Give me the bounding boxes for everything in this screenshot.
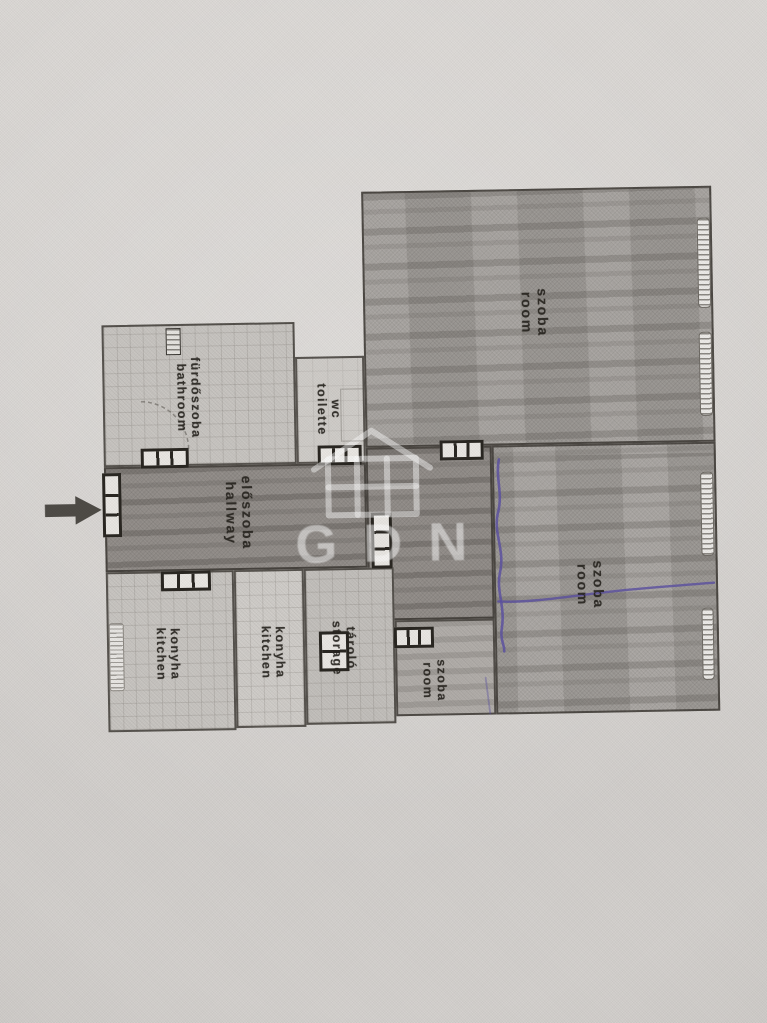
floorplan-drawing: GDN szoba room szoba room szoba room für… <box>99 185 720 733</box>
kitchen-mid-label: konyha kitchen <box>259 625 288 679</box>
room-large-label: szoba room <box>518 288 550 337</box>
wc-label: wc toilette <box>314 383 343 436</box>
entrance-arrow-icon <box>44 494 102 526</box>
scanned-floorplan-photo: { "floorplan": { "watermark_text": "GDN"… <box>0 0 767 1023</box>
storage-label: tároló storage <box>330 620 359 675</box>
door-leaf-line <box>341 389 368 441</box>
room-small-label: szoba room <box>420 659 449 702</box>
room-right-label: szoba room <box>574 560 606 609</box>
bathroom-label: fürdőszoba bathroom <box>174 357 203 439</box>
plan-overlay <box>99 185 720 733</box>
hallway-label: előszoba hallway <box>222 476 255 551</box>
kitchen-left-label: konyha kitchen <box>154 627 183 681</box>
